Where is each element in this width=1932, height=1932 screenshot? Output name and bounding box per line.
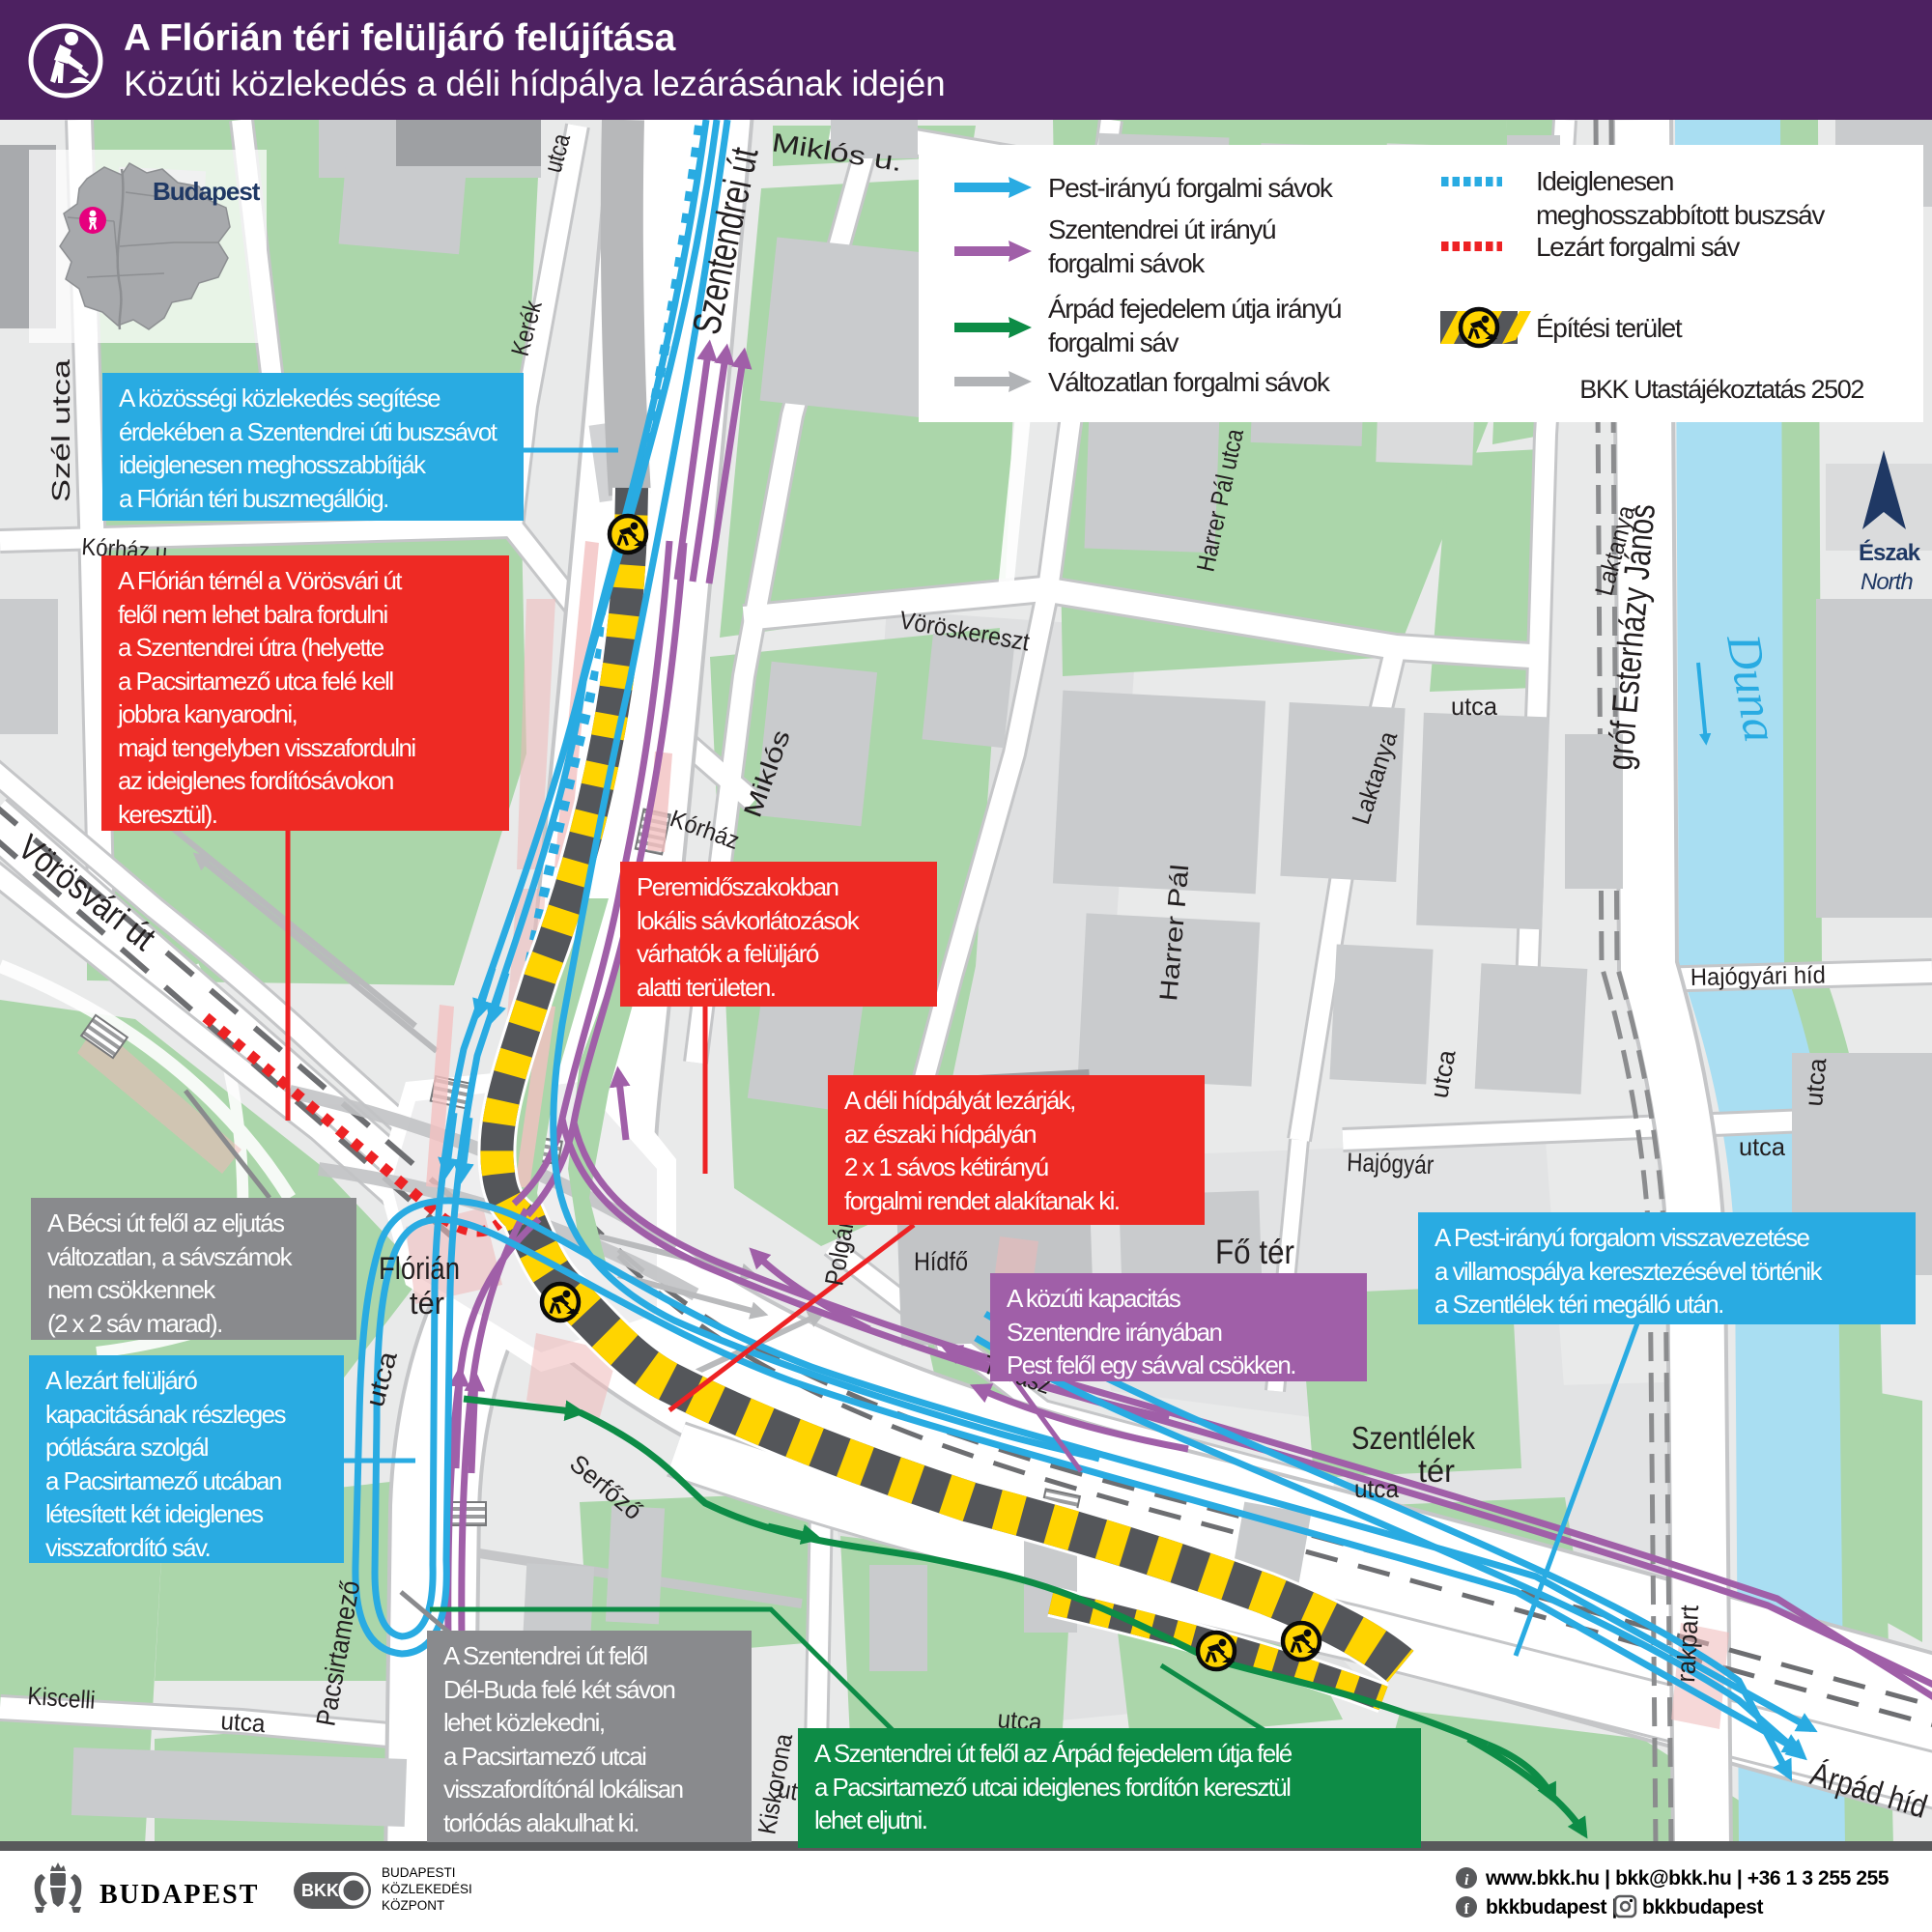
- svg-text:Flórián: Flórián: [379, 1251, 460, 1286]
- svg-text:utca: utca: [220, 1706, 267, 1738]
- svg-text:BKK: BKK: [301, 1881, 339, 1900]
- svg-text:www.bkk.hu | bkk@bkk.hu | +36: www.bkk.hu | bkk@bkk.hu | +36 1 3 255 25…: [1485, 1867, 1889, 1889]
- svg-text:Észak: Észak: [1859, 539, 1921, 566]
- svg-text:bkkbudapest |: bkkbudapest |: [1486, 1896, 1617, 1918]
- svg-text:Szentlélek: Szentlélek: [1351, 1420, 1475, 1456]
- svg-text:tér: tér: [1418, 1453, 1455, 1489]
- svg-text:BUDAPESTI: BUDAPESTI: [382, 1865, 456, 1880]
- svg-text:Budapest: Budapest: [153, 177, 261, 206]
- svg-text:utca: utca: [1799, 1057, 1832, 1108]
- svg-text:BUDAPEST: BUDAPEST: [99, 1880, 259, 1910]
- svg-text:North: North: [1861, 569, 1913, 595]
- svg-text:Szél utca: Szél utca: [46, 358, 75, 502]
- svg-text:utca: utca: [1739, 1132, 1786, 1161]
- svg-text:Fő tér: Fő tér: [1215, 1234, 1294, 1271]
- svg-text:utca: utca: [1451, 692, 1498, 721]
- svg-text:Hajógyár: Hajógyár: [1347, 1148, 1435, 1179]
- svg-text:Hajógyári híd: Hajógyári híd: [1690, 962, 1826, 991]
- svg-text:Hídfő: Hídfő: [914, 1247, 968, 1276]
- svg-text:KÖZLEKEDÉSI: KÖZLEKEDÉSI: [382, 1882, 472, 1896]
- svg-text:KÖZPONT: KÖZPONT: [382, 1898, 444, 1913]
- svg-text:rakpart: rakpart: [1671, 1604, 1704, 1683]
- svg-text:utca: utca: [1354, 1474, 1399, 1503]
- svg-text:bkkbudapest: bkkbudapest: [1642, 1896, 1764, 1918]
- svg-text:tér: tér: [410, 1286, 444, 1321]
- svg-text:Kiscelli: Kiscelli: [27, 1681, 97, 1715]
